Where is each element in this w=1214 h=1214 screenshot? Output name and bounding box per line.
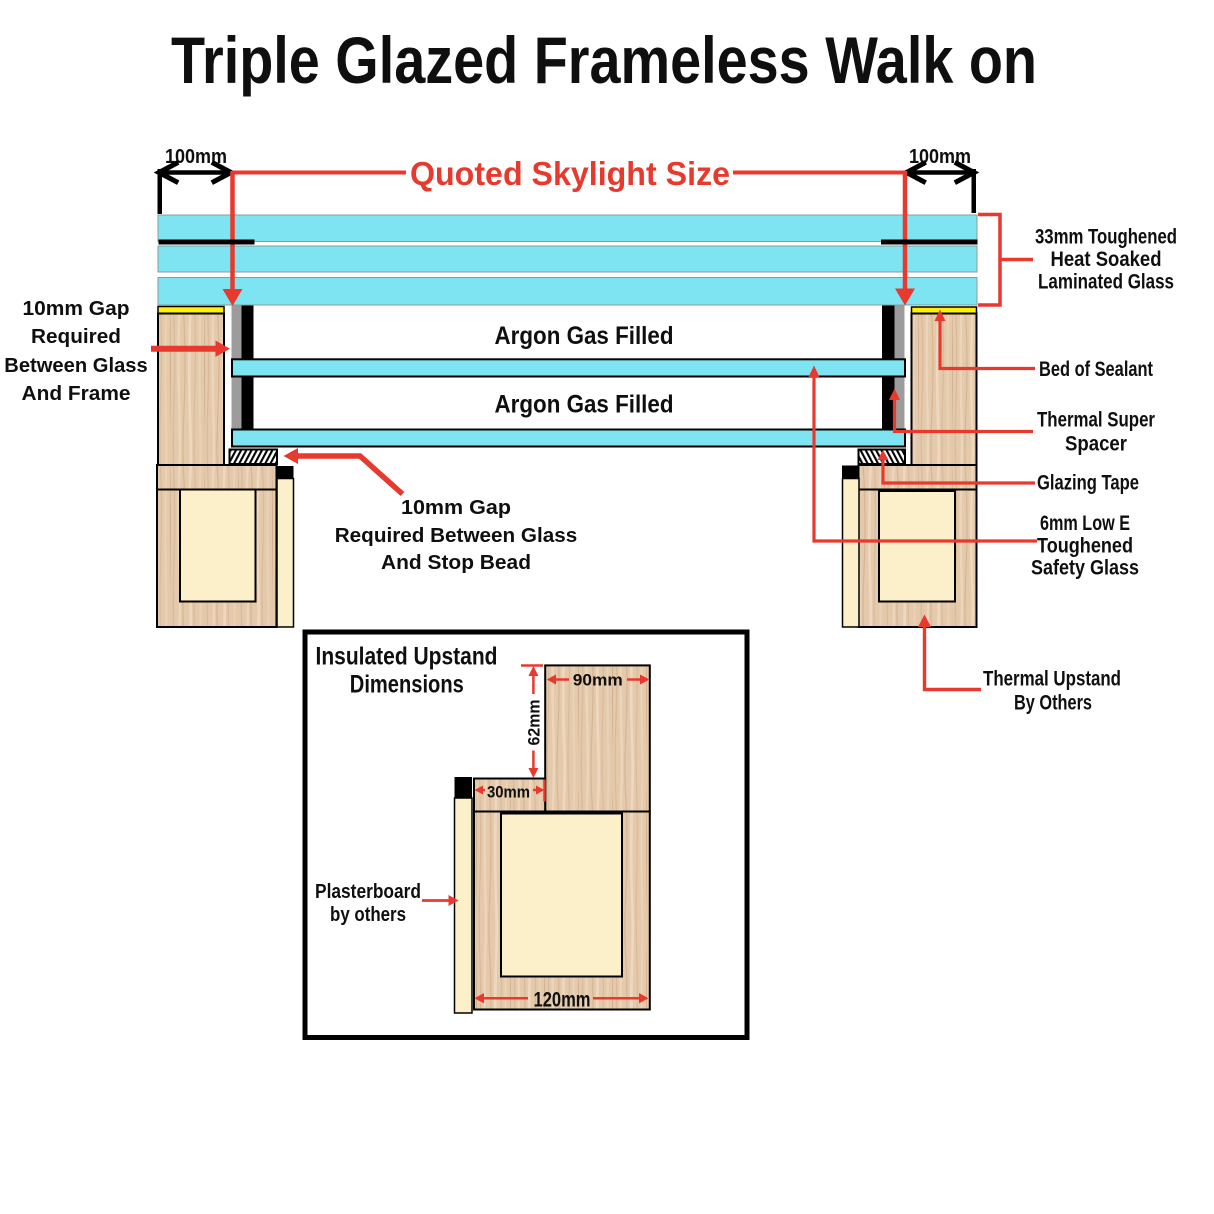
svg-text:Laminated Glass: Laminated Glass xyxy=(1038,271,1174,294)
svg-text:Required Between Glass: Required Between Glass xyxy=(335,525,578,547)
svg-text:Toughened: Toughened xyxy=(1037,535,1133,558)
svg-text:Thermal Super: Thermal Super xyxy=(1037,409,1155,432)
svg-text:Argon Gas Filled: Argon Gas Filled xyxy=(495,322,674,350)
svg-text:Quoted Skylight Size: Quoted Skylight Size xyxy=(410,155,730,192)
svg-text:10mm Gap: 10mm Gap xyxy=(401,497,511,519)
svg-text:Triple Glazed Frameless Walk o: Triple Glazed Frameless Walk on xyxy=(171,23,1037,97)
svg-text:30mm: 30mm xyxy=(487,783,530,801)
svg-text:Required: Required xyxy=(31,326,121,348)
svg-text:Insulated Upstand: Insulated Upstand xyxy=(316,642,498,670)
svg-text:Thermal Upstand: Thermal Upstand xyxy=(983,668,1121,691)
svg-text:10mm Gap: 10mm Gap xyxy=(23,298,130,320)
svg-text:120mm: 120mm xyxy=(534,989,591,1012)
svg-text:Between Glass: Between Glass xyxy=(4,355,148,377)
svg-text:By Others: By Others xyxy=(1014,692,1092,715)
svg-text:Safety Glass: Safety Glass xyxy=(1031,557,1139,580)
svg-text:Argon Gas Filled: Argon Gas Filled xyxy=(495,391,674,419)
svg-text:Spacer: Spacer xyxy=(1065,433,1127,456)
svg-text:62mm: 62mm xyxy=(526,700,544,746)
svg-text:Bed of Sealant: Bed of Sealant xyxy=(1039,358,1153,381)
svg-text:Dimensions: Dimensions xyxy=(350,671,464,699)
svg-text:6mm Low E: 6mm Low E xyxy=(1040,512,1130,535)
svg-text:Glazing Tape: Glazing Tape xyxy=(1037,472,1139,495)
svg-text:Heat Soaked: Heat Soaked xyxy=(1051,248,1162,271)
svg-text:90mm: 90mm xyxy=(573,671,623,689)
svg-text:And Frame: And Frame xyxy=(22,383,131,405)
svg-text:by others: by others xyxy=(330,904,406,926)
svg-text:And Stop Bead: And Stop Bead xyxy=(381,552,531,574)
svg-text:Plasterboard: Plasterboard xyxy=(315,881,421,903)
svg-text:33mm Toughened: 33mm Toughened xyxy=(1035,226,1177,249)
